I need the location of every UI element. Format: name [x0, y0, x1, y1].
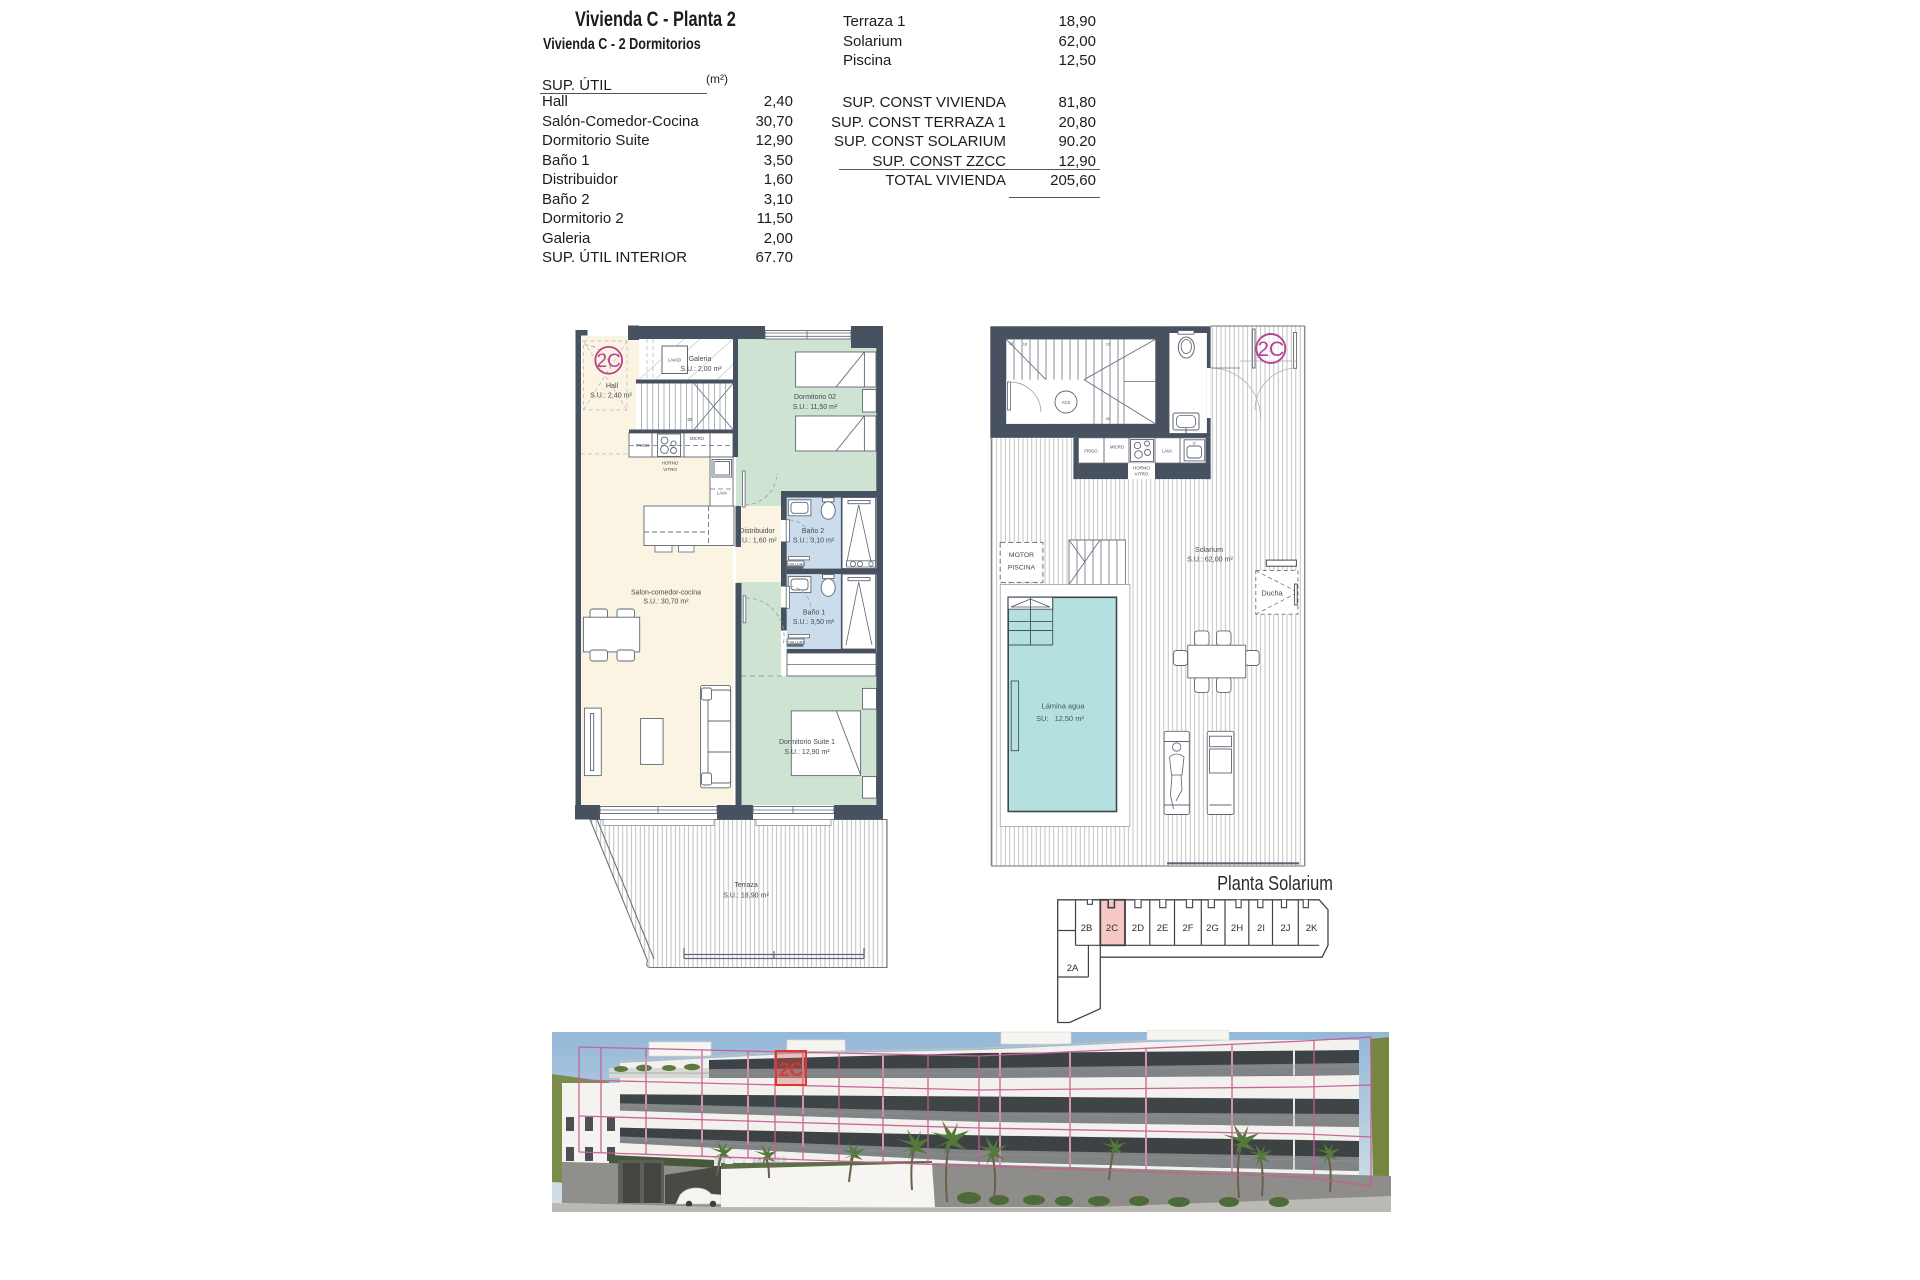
svg-text:Baño 1: Baño 1 [803, 610, 825, 617]
svg-text:05: 05 [1106, 416, 1111, 421]
svg-text:Salon-comedor-cocina: Salon-comedor-cocina [631, 590, 701, 597]
svg-text:D: D [1193, 441, 1196, 446]
svg-text:16: 16 [1009, 341, 1014, 346]
svg-text:S.U.: 30,70 m²: S.U.: 30,70 m² [643, 599, 689, 606]
svg-text:MICRO: MICRO [1110, 445, 1125, 450]
svg-text:2D: 2D [1132, 923, 1144, 934]
svg-text:Galeria: Galeria [689, 356, 712, 363]
svg-text:LAVAD: LAVAD [668, 358, 681, 363]
svg-text:MOTOR: MOTOR [1009, 552, 1034, 559]
svg-text:2A: 2A [1067, 963, 1079, 974]
svg-text:S.U.: 3,50 m²: S.U.: 3,50 m² [793, 619, 835, 626]
svg-text:S.U.: 2,40 m²: S.U.: 2,40 m² [590, 392, 632, 400]
svg-text:VITRO: VITRO [663, 467, 677, 472]
svg-text:LAVA: LAVA [717, 491, 727, 496]
svg-text:MICRO: MICRO [690, 436, 705, 441]
svg-text:S.U.: 18,90 m²: S.U.: 18,90 m² [723, 892, 769, 900]
svg-text:2K: 2K [1306, 923, 1318, 934]
svg-text:Baño 2: Baño 2 [802, 528, 824, 535]
svg-text:S.U.: 12,90 m²: S.U.: 12,90 m² [784, 749, 830, 756]
svg-text:Dormitorio Suite 1: Dormitorio Suite 1 [779, 739, 835, 746]
svg-text:Terraza: Terraza [734, 881, 758, 889]
svg-text:2C: 2C [1257, 338, 1284, 361]
svg-text:10: 10 [1106, 342, 1111, 347]
svg-text:2C: 2C [779, 1060, 804, 1081]
svg-text:Distribuidor: Distribuidor [739, 528, 775, 535]
svg-text:2J: 2J [1280, 923, 1290, 934]
svg-text:VITRO: VITRO [1135, 471, 1149, 476]
svg-text:PISCINA: PISCINA [1008, 565, 1036, 572]
svg-text:FRIGO: FRIGO [636, 443, 650, 448]
svg-text:2H: 2H [1231, 923, 1243, 934]
svg-text:Ducha: Ducha [1261, 589, 1283, 598]
svg-text:2E: 2E [1157, 923, 1169, 934]
svg-text:2F: 2F [1182, 923, 1193, 934]
svg-text:FRIGO: FRIGO [1084, 449, 1098, 454]
svg-text:2C: 2C [597, 351, 621, 372]
svg-text:HORNO: HORNO [1133, 465, 1150, 470]
svg-text:TOALLERO: TOALLERO [786, 562, 805, 566]
svg-text:16: 16 [1023, 342, 1028, 347]
svg-text:SU: 12,50 m²: SU: 12,50 m² [1036, 714, 1084, 723]
svg-text:Solarium: Solarium [1195, 546, 1223, 554]
svg-text:S.U.: 62,00 m²: S.U.: 62,00 m² [1187, 556, 1233, 564]
svg-text:S.U.: 2,00 m²: S.U.: 2,00 m² [680, 366, 722, 373]
svg-text:S.U.: 11,50 m²: S.U.: 11,50 m² [793, 404, 838, 411]
svg-text:TOALLERO: TOALLERO [786, 640, 805, 644]
svg-text:Dormitorio 02: Dormitorio 02 [794, 394, 836, 401]
svg-text:2C: 2C [1106, 923, 1118, 934]
svg-text:2I: 2I [1257, 923, 1265, 934]
svg-text:S.U.: 3,10 m²: S.U.: 3,10 m² [793, 538, 835, 545]
svg-text:2B: 2B [1081, 923, 1093, 934]
svg-text:HORNO: HORNO [662, 461, 679, 466]
svg-text:S.U.: 1,60 m²: S.U.: 1,60 m² [735, 538, 777, 545]
svg-text:05: 05 [687, 417, 693, 422]
svg-text:Lámina agua: Lámina agua [1042, 702, 1086, 711]
svg-text:LAVA: LAVA [1162, 449, 1172, 454]
svg-text:2G: 2G [1206, 923, 1219, 934]
svg-text:Hall: Hall [606, 382, 619, 390]
svg-text:ACS: ACS [1062, 400, 1071, 405]
